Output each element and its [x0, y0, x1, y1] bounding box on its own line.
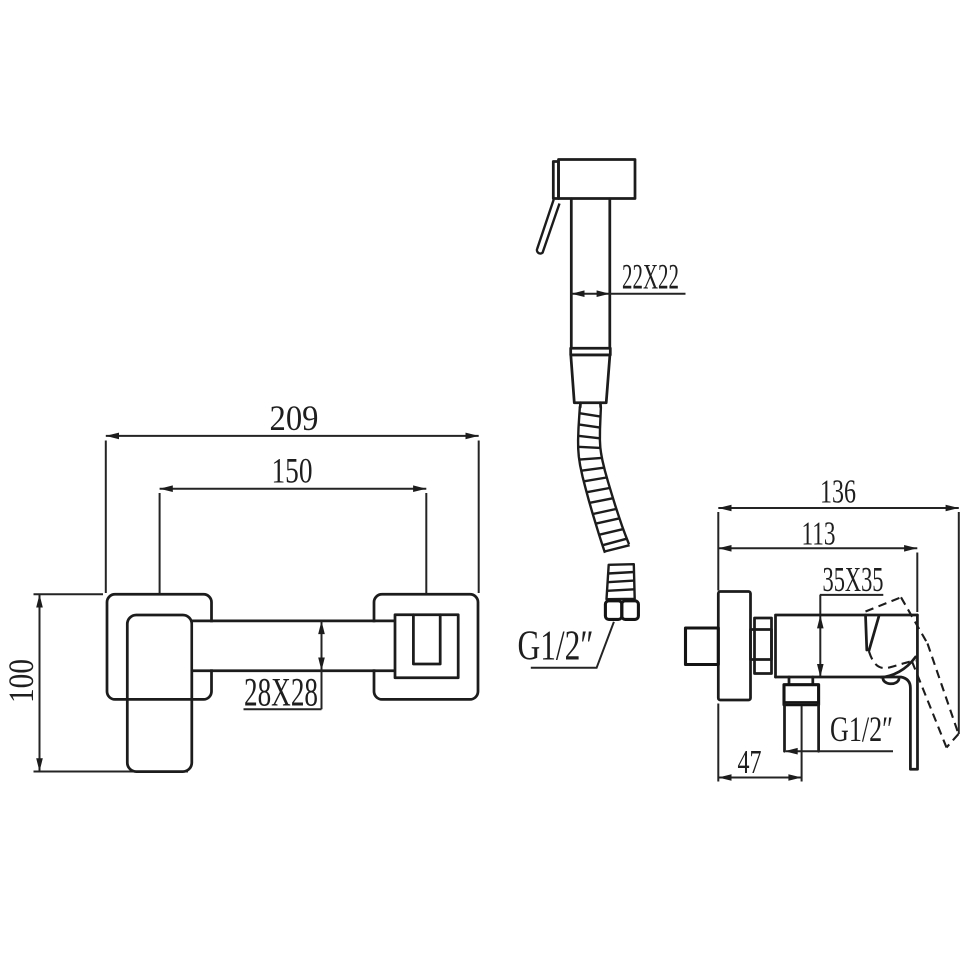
svg-text:G1/2″: G1/2″ — [830, 709, 893, 749]
svg-text:35X35: 35X35 — [823, 560, 884, 599]
svg-text:100: 100 — [1, 659, 41, 703]
svg-text:G1/2″: G1/2″ — [518, 624, 594, 670]
svg-text:47: 47 — [738, 744, 762, 781]
svg-text:150: 150 — [272, 451, 313, 491]
svg-text:136: 136 — [820, 474, 856, 511]
svg-text:22X22: 22X22 — [622, 257, 679, 297]
svg-text:28X28: 28X28 — [244, 670, 318, 715]
svg-text:209: 209 — [270, 398, 319, 438]
svg-text:113: 113 — [802, 516, 836, 553]
